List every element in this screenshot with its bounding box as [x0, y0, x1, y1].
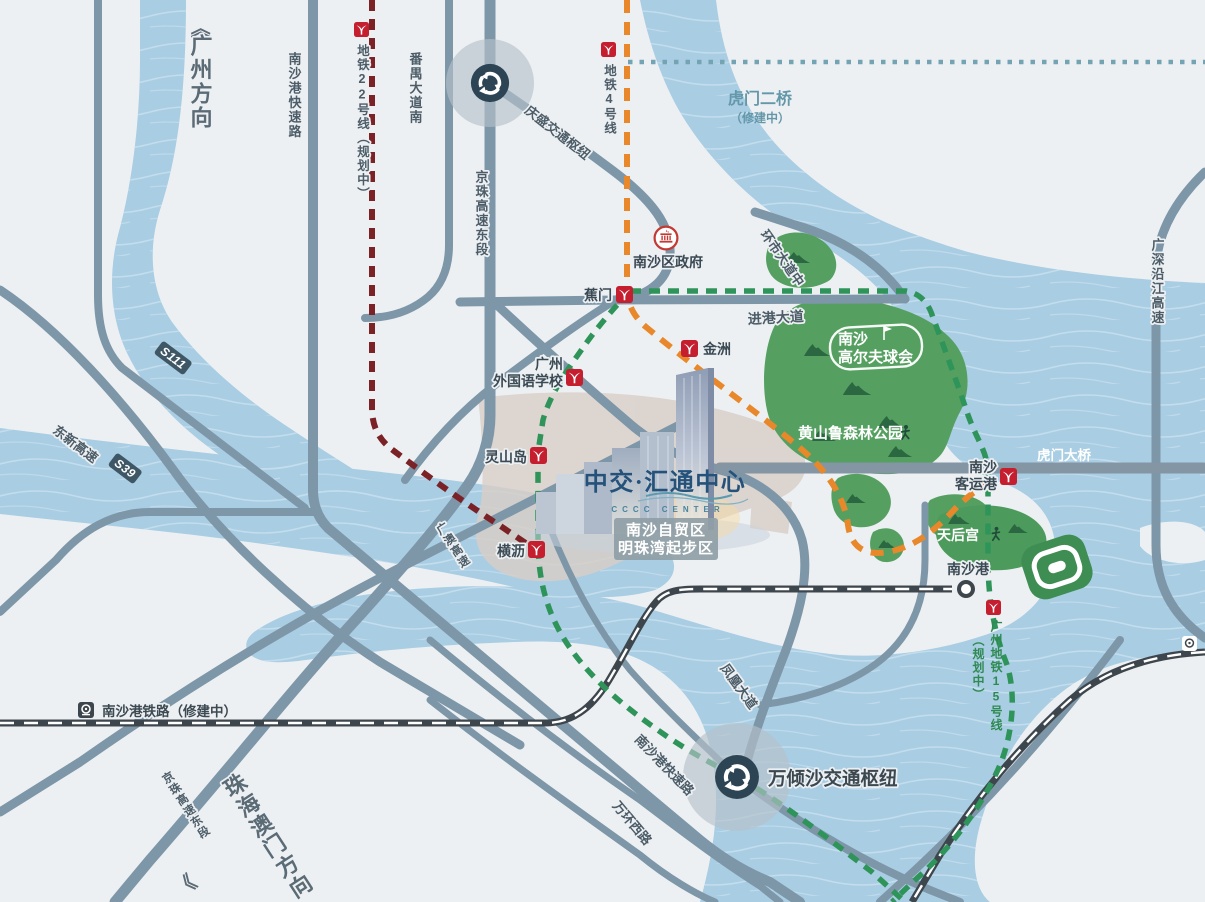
metro-line15-status: （规划中） — [971, 634, 985, 702]
metro-station-icon — [681, 340, 698, 357]
forest-park-label: 黄山鲁森林公园 — [798, 424, 909, 442]
metro-icon — [986, 600, 1001, 615]
landmark-label-government: 南沙区政府 — [633, 254, 703, 270]
road-label-nansha-port-expressway-top: 南沙港快速路 — [287, 51, 302, 139]
qingsheng-roundabout-icon — [471, 64, 509, 102]
zone-line2: 明珠湾起步区 — [618, 539, 714, 557]
project-name: 中交·汇通中心 — [584, 468, 747, 496]
station-label: 客运港 — [954, 476, 998, 492]
station-label: 外国语学校 — [493, 373, 564, 389]
landmark-label: 高尔夫球会 — [838, 348, 913, 366]
station-label: 蕉门 — [584, 287, 612, 303]
nansha-port-label-group: 南沙港 — [947, 561, 990, 577]
wanqingsha-roundabout-icon — [715, 755, 759, 799]
government-icon — [655, 227, 678, 250]
station-label: 广州 — [535, 356, 563, 372]
nansha-port-terminus — [959, 582, 973, 596]
metro-line22-label-group: 地铁22号线（规划中） — [354, 22, 370, 201]
road-label-humen-bridge: 虎门大桥 — [1037, 447, 1091, 463]
station-label: 灵山岛 — [485, 449, 527, 465]
metro-station-icon — [566, 369, 583, 386]
zone-line1: 南沙自贸区 — [626, 521, 706, 539]
landmark-label: 南沙 — [838, 330, 868, 348]
road-label-jingzhu-east-top: 京珠高速东段 — [474, 169, 489, 257]
direction-guangzhou: 广州方向 — [188, 33, 213, 130]
zone-label-box: 南沙自贸区 明珠湾起步区 — [614, 518, 718, 560]
nansha-port-label: 南沙港 — [947, 561, 990, 577]
metro-station-icon — [1000, 468, 1017, 485]
road-label-panyu-avenue-south: 番禺大道南 — [408, 51, 424, 124]
location-map: 《 广州方向 珠海澳门方向 》 南沙港快速路 番禺大道南 京珠高速东段 庆盛交通… — [0, 0, 1205, 902]
station-label: 南沙 — [969, 459, 997, 475]
metro-icon — [601, 42, 616, 57]
metro-line22-label: 地铁22号线（规划中） — [355, 43, 370, 201]
hub-label-wanqingsha: 万倾沙交通枢纽 — [767, 768, 898, 789]
station-label: 横沥 — [497, 543, 525, 559]
road-label-guangshen-yanjiang: 广深沿江高速 — [1150, 237, 1165, 325]
road-label-jingang-avenue: 进港大道 — [747, 308, 804, 327]
direction-zhuhai-macau: 珠海澳门方向 — [217, 770, 316, 902]
railway-icon-east — [1182, 636, 1197, 651]
metro-line4-label: 地铁4号线 — [602, 63, 616, 136]
road-jingang-avenue — [614, 299, 905, 300]
station-jiaomen: 蕉门 — [584, 286, 633, 303]
metro-line15-name: 广州地铁15号线 — [989, 619, 1003, 732]
metro-icon — [354, 22, 369, 37]
station-hengli: 横沥 — [497, 541, 545, 559]
railway-label-group: 南沙港铁路（修建中） — [78, 702, 237, 719]
chevron-south-icon: 》 — [169, 869, 199, 899]
station-lingshandao: 灵山岛 — [485, 447, 547, 465]
road-label-humen-second-bridge-status: （修建中） — [730, 110, 790, 125]
station-jinzhou: 金洲 — [681, 340, 731, 357]
road-panyu-avenue — [365, 0, 449, 318]
metro-station-icon — [528, 541, 545, 558]
railway-icon — [78, 702, 94, 718]
landmark-label: 黄山鲁森林公园 — [798, 424, 903, 442]
metro-station-icon — [530, 447, 547, 464]
station-gz-foreign-language-school: 广州 外国语学校 — [493, 356, 583, 389]
landmark-label: 天后宫 — [937, 527, 979, 543]
road-label-humen-second-bridge: 虎门二桥 — [728, 89, 793, 108]
hub-label-qingsheng: 庆盛交通枢纽 — [521, 102, 593, 162]
railway-label: 南沙港铁路（修建中） — [102, 703, 237, 719]
station-label: 金洲 — [702, 341, 731, 357]
metro-line4-label-group: 地铁4号线 — [601, 42, 616, 136]
project-name-en: CCCC CENTER — [611, 505, 724, 514]
metro-station-icon — [616, 286, 633, 303]
